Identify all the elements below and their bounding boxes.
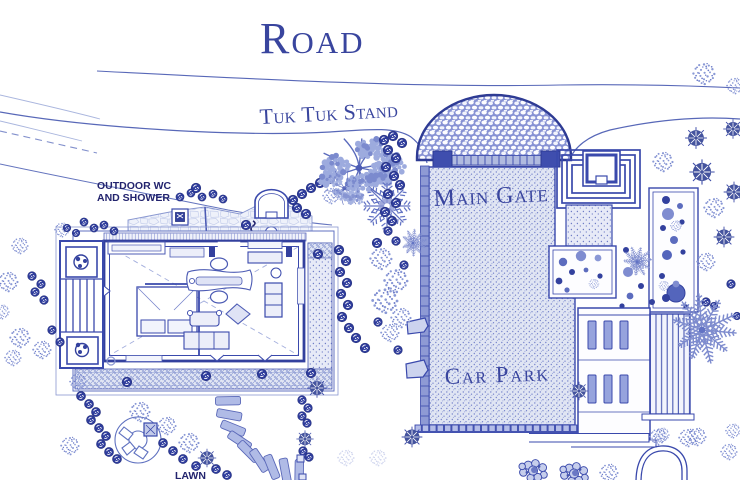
- svg-text:Road: Road: [260, 14, 365, 63]
- svg-text:Car Park: Car Park: [444, 360, 550, 389]
- svg-text:OUTDOOR WC: OUTDOOR WC: [97, 180, 171, 192]
- svg-text:LAWN: LAWN: [175, 470, 206, 480]
- svg-text:AND SHOWER: AND SHOWER: [97, 192, 170, 204]
- svg-text:Main Gate: Main Gate: [433, 181, 549, 212]
